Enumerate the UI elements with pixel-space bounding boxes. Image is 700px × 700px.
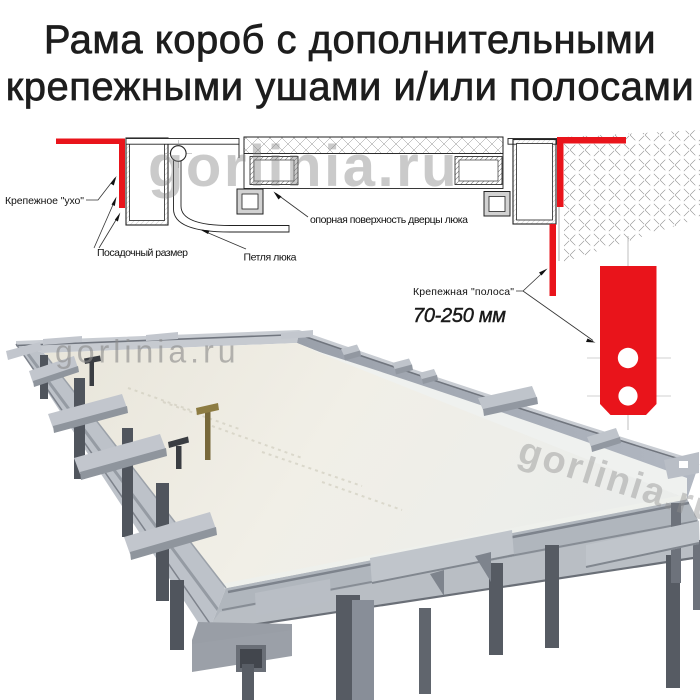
svg-text:Петля люка: Петля люка — [244, 252, 297, 264]
svg-text:gorlinia.ru: gorlinia.ru — [148, 134, 459, 199]
svg-text:Посадочный размер: Посадочный размер — [97, 247, 188, 259]
svg-text:70-250 мм: 70-250 мм — [413, 305, 506, 327]
svg-text:Крепежное "ухо": Крепежное "ухо" — [5, 195, 84, 207]
svg-text:Крепежная "полоса": Крепежная "полоса" — [413, 286, 514, 298]
svg-text:gorlinia.ru: gorlinia.ru — [55, 334, 240, 370]
svg-text:опорная поверхность дверцы люк: опорная поверхность дверцы люка — [310, 214, 468, 226]
